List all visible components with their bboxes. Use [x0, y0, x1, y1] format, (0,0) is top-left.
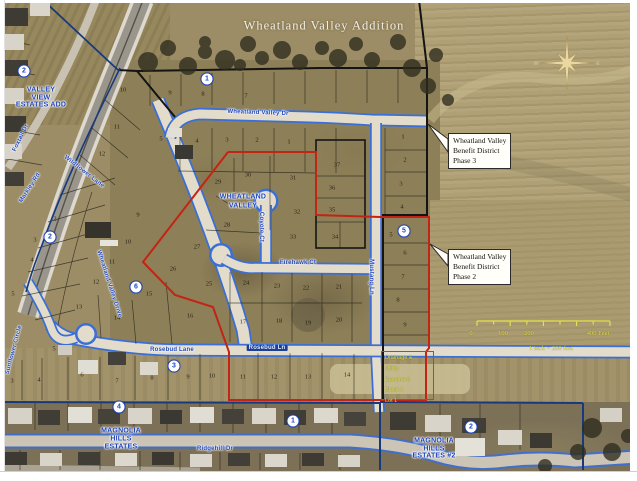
lot-number: 4: [30, 257, 33, 264]
scale-tick-label: 0: [469, 330, 472, 337]
lot-number: 5: [389, 232, 392, 239]
neighborhood-label-valley-view: ESTATES ADD: [16, 102, 66, 109]
center-block-boundary: [316, 140, 365, 248]
circled-marker-2: 2: [465, 421, 478, 434]
street-label: Mustang Ln: [368, 259, 374, 295]
neighborhood-label-magnolia-hills-2: ESTATES #2: [413, 453, 456, 460]
lot-number: 12: [271, 374, 278, 381]
street-label: Firehawk Ct: [280, 260, 316, 266]
callout-phase3: Wheatland ValleyBenefit DistrictPhase 3: [448, 133, 511, 169]
neighborhood-label-wheatland-valley: VALLEY: [229, 203, 257, 210]
lot-number: 4: [195, 138, 198, 145]
circled-marker-5: 5: [398, 225, 411, 238]
scale-caption: 1 inch = 200 feet: [529, 345, 573, 352]
frame-left: [0, 0, 5, 481]
lot-number: 32: [294, 209, 301, 216]
lot-number: 7: [115, 378, 118, 385]
map-drawing: [0, 0, 637, 481]
neighborhood-label-magnolia-hills: ESTATES: [105, 444, 138, 451]
callout-phase2: Wheatland ValleyBenefit DistrictPhase 2: [448, 249, 511, 285]
lot-number: 11: [240, 374, 246, 381]
lot-number: 29: [215, 179, 222, 186]
scale-bar-ruler: [477, 321, 610, 326]
lot-number: 31: [290, 175, 297, 182]
lot-number: 37: [334, 162, 341, 169]
scale-tick-label: 200: [524, 330, 534, 337]
lot-number: 11: [109, 259, 115, 266]
lot-number: 7: [244, 93, 247, 100]
plat-boundary-east: [383, 0, 427, 403]
lot-number: 15: [146, 291, 153, 298]
lot-number: 9: [136, 212, 139, 219]
neighborhood-label-wheatland-valley: WHEATLAND: [220, 194, 266, 201]
lot-number: 8: [201, 91, 204, 98]
lot-number: 4: [37, 377, 40, 384]
scale-tick-label: 100: [498, 330, 508, 337]
lot-number: 19: [305, 320, 312, 327]
lot-number: 1: [287, 139, 290, 146]
circled-marker-3: 3: [168, 360, 181, 373]
street-label: Rosebud Lane: [150, 347, 194, 353]
circled-marker-6: 6: [130, 281, 143, 294]
lot-number: 2: [53, 216, 56, 223]
lot-number: 9: [403, 322, 406, 329]
lot-number: 13: [76, 304, 83, 311]
lot-number: 4: [400, 204, 403, 211]
lot-number: 12: [93, 279, 100, 286]
lot-number: 25: [206, 281, 213, 288]
lot-number: 9: [186, 374, 189, 381]
lot-number: 14: [344, 372, 351, 379]
circled-marker-1: 1: [201, 73, 214, 86]
map-title: Wheatland Valley Addition: [244, 19, 405, 34]
lot-number: 33: [290, 234, 297, 241]
lot-number: 22: [303, 285, 310, 292]
neighborhood-label-magnolia-hills-2: MAGNOLIA: [414, 438, 454, 445]
lot-number: 34: [332, 234, 339, 241]
lot-number: 27: [194, 244, 201, 251]
lot-number: 3: [33, 237, 36, 244]
lot-number: 21: [336, 284, 343, 291]
lot-number: 6: [80, 372, 83, 379]
magnolia-boundary: [5, 402, 380, 403]
houses: [0, 2, 622, 467]
street-label: Coyote Ct: [258, 212, 264, 242]
lot-number: 3: [399, 181, 402, 188]
lot-number: 12: [99, 151, 106, 158]
callout-pointers: [428, 124, 448, 266]
plat-map-page: Wheatland Valley Addition VALLEYVIEWESTA…: [0, 0, 637, 481]
lot-number: 3: [10, 378, 13, 385]
lot-number: 36: [329, 185, 336, 192]
aerial-photo: Wheatland Valley Addition VALLEYVIEWESTA…: [0, 0, 637, 481]
lot-number: 16: [187, 313, 194, 320]
lot-number: 35: [329, 207, 336, 214]
street-label: Ridgehill Dr: [197, 446, 233, 452]
lot-number: 6: [403, 250, 406, 257]
lot-number: 5: [11, 291, 14, 298]
frame-top: [0, 0, 637, 3]
lot-number: 9: [168, 90, 171, 97]
lot-number: 10: [120, 87, 127, 94]
drainage-easement-box: Drainage &UtilityEasementBlock 4Lot 1: [381, 351, 434, 400]
neighborhood-label-valley-view: VIEW: [32, 94, 51, 101]
lot-number: 1: [401, 134, 404, 141]
frame-right: [630, 0, 637, 481]
neighborhood-label-magnolia-hills-2: HILLS: [423, 445, 444, 452]
lot-number: 10: [125, 239, 132, 246]
lot-number: 26: [170, 266, 177, 273]
lot-number: 24: [243, 280, 250, 287]
compass-letter-E: E: [596, 61, 599, 67]
lot-number: 17: [240, 319, 247, 326]
lot-number: 2: [255, 137, 258, 144]
lot-number: 18: [276, 318, 283, 325]
circled-marker-1: 1: [287, 415, 300, 428]
lot-number: 8: [150, 375, 153, 382]
lot-number: 23: [274, 283, 281, 290]
lot-number: 7: [401, 274, 404, 281]
neighborhood-label-valley-view: VALLEY: [27, 87, 55, 94]
neighborhood-label-magnolia-hills: MAGNOLIA: [101, 428, 141, 435]
lot-number: 5: [159, 136, 162, 143]
scale-tick-label: 400 Feet: [587, 330, 610, 337]
lot-number: 20: [336, 317, 343, 324]
frame-bottom: [0, 471, 637, 481]
lot-number: 5: [52, 346, 55, 353]
circled-marker-4: 4: [113, 401, 126, 414]
lot-number: 28: [224, 222, 231, 229]
compass-letter-W: W: [534, 61, 539, 67]
lot-number: 3: [225, 137, 228, 144]
valley-view-boundary: [43, 0, 118, 70]
lot-number: 30: [245, 172, 252, 179]
circled-marker-2: 2: [44, 231, 57, 244]
lot-number: 10: [209, 373, 216, 380]
lot-number: 8: [396, 297, 399, 304]
street-label: Rosebud Ln: [247, 345, 288, 351]
lot-number: 13: [305, 374, 312, 381]
circled-marker-2: 2: [18, 65, 31, 78]
farm-track: [430, 70, 632, 120]
lot-number: 2: [403, 157, 406, 164]
neighborhood-label-magnolia-hills: HILLS: [110, 436, 131, 443]
lot-number: 11: [114, 124, 120, 131]
